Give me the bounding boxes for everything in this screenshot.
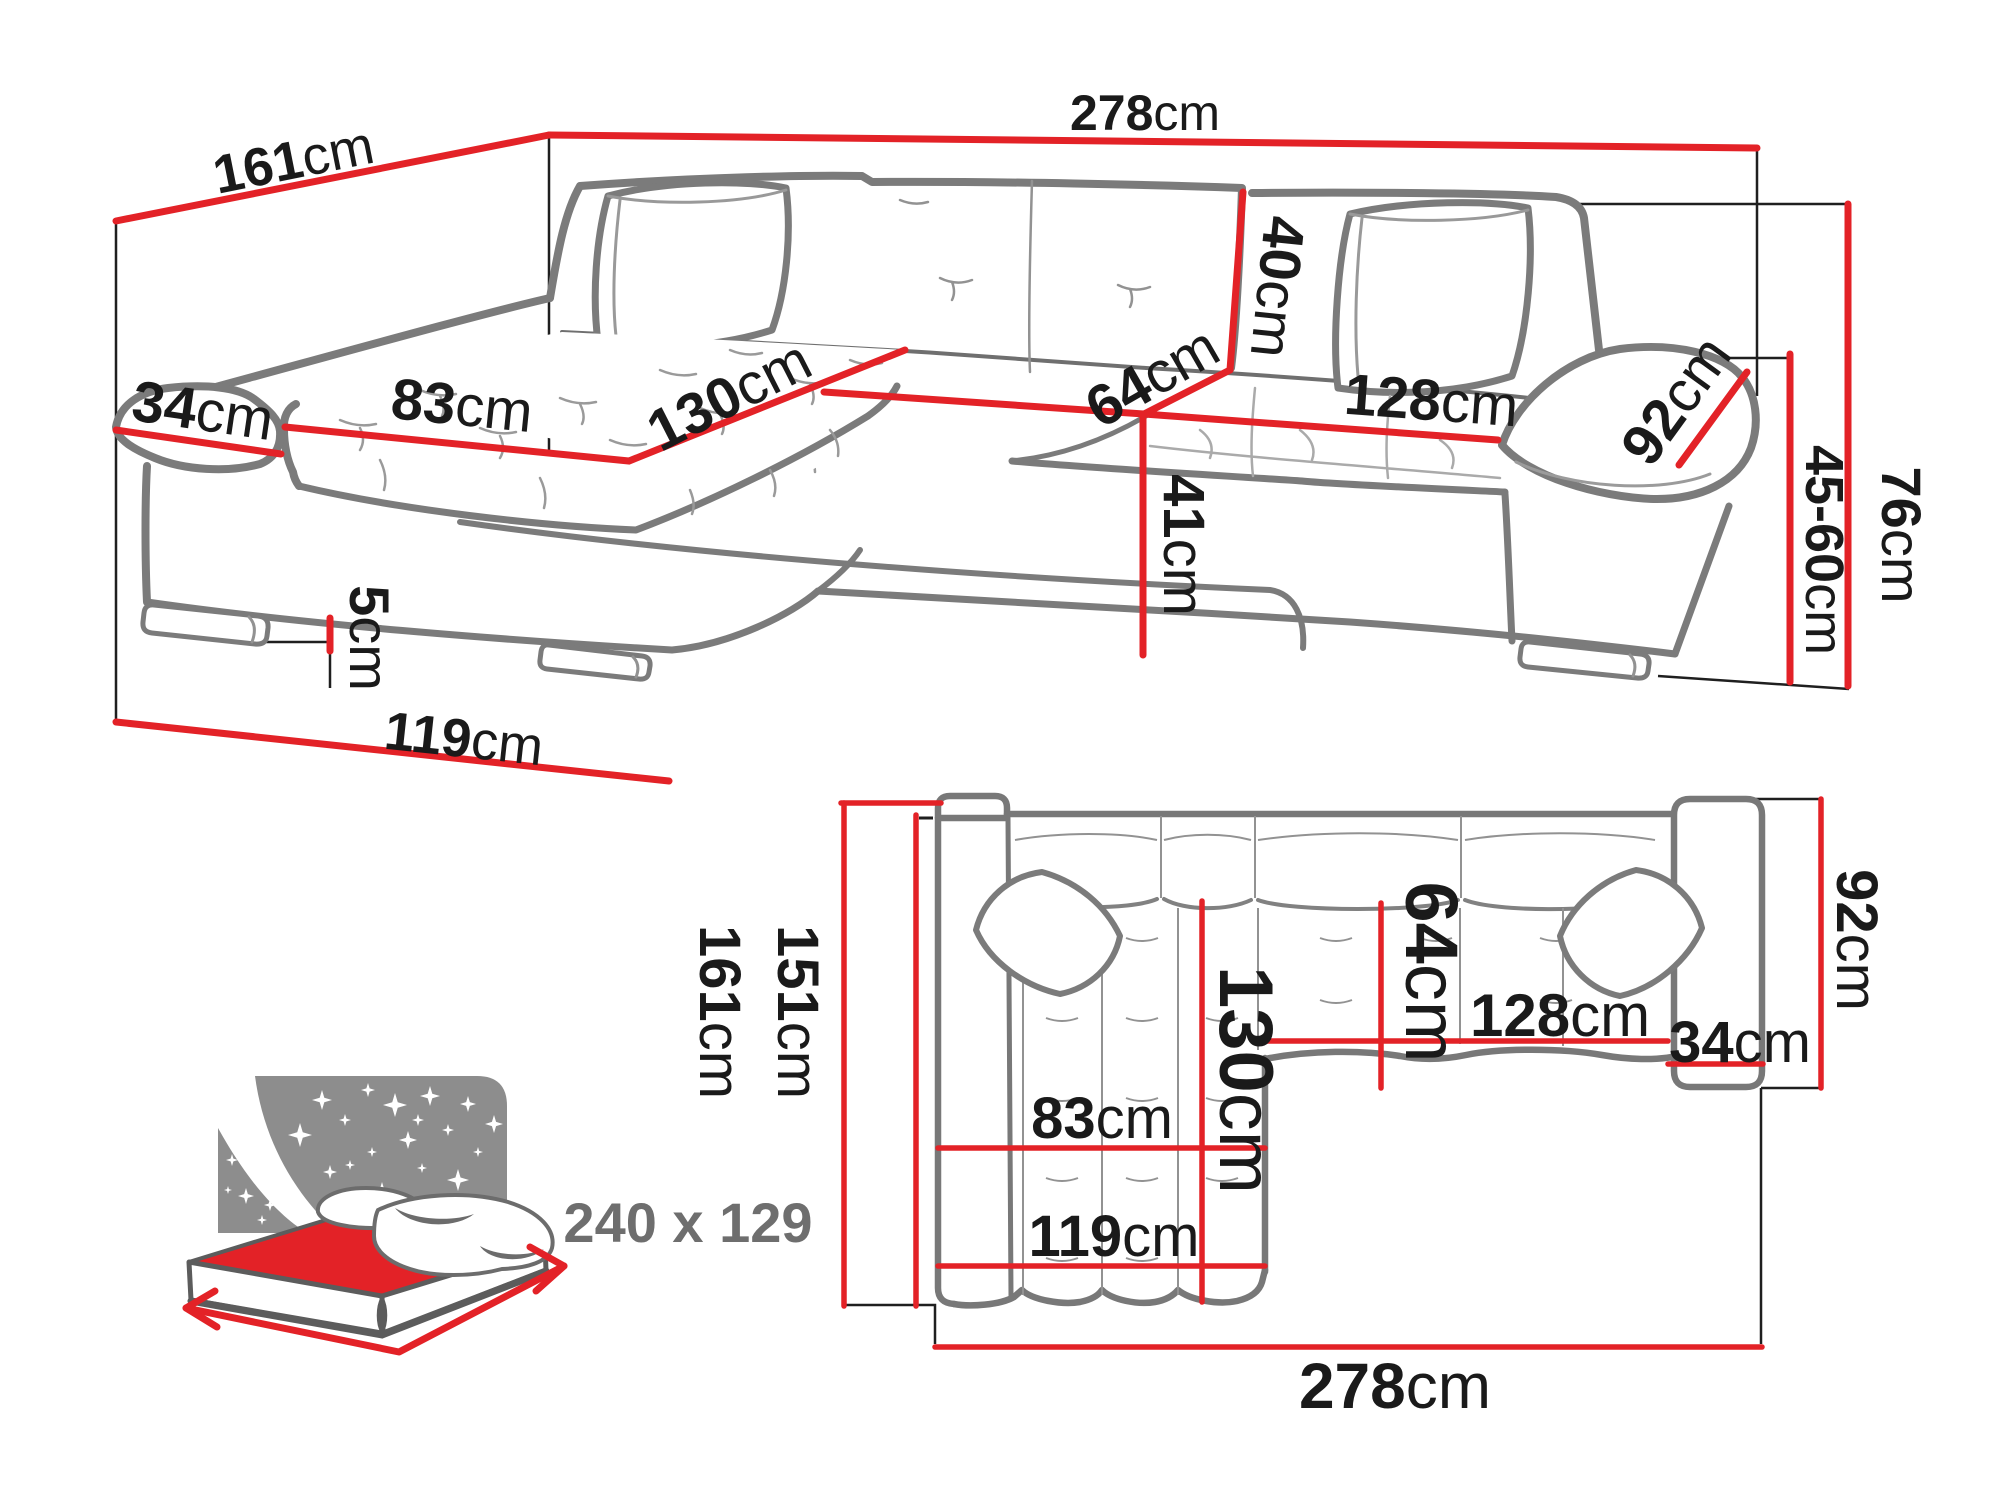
svg-text:130cm: 130cm <box>1203 966 1288 1194</box>
svg-text:5cm: 5cm <box>338 585 401 691</box>
svg-text:161cm: 161cm <box>687 925 752 1099</box>
svg-text:64cm: 64cm <box>1390 882 1473 1063</box>
svg-text:34cm: 34cm <box>1669 1010 1811 1075</box>
svg-text:41cm: 41cm <box>1151 474 1216 616</box>
svg-text:92cm: 92cm <box>1824 869 1889 1011</box>
svg-text:240 x 129: 240 x 129 <box>563 1191 812 1254</box>
svg-text:151cm: 151cm <box>765 925 830 1099</box>
svg-text:76cm: 76cm <box>1870 467 1933 604</box>
svg-text:83cm: 83cm <box>1031 1086 1173 1151</box>
svg-text:278cm: 278cm <box>1070 85 1220 141</box>
svg-text:119cm: 119cm <box>1029 1204 1200 1269</box>
svg-text:45-60cm: 45-60cm <box>1794 445 1854 655</box>
svg-text:128cm: 128cm <box>1470 982 1650 1049</box>
svg-text:128cm: 128cm <box>1342 362 1520 440</box>
svg-text:278cm: 278cm <box>1299 1350 1491 1422</box>
